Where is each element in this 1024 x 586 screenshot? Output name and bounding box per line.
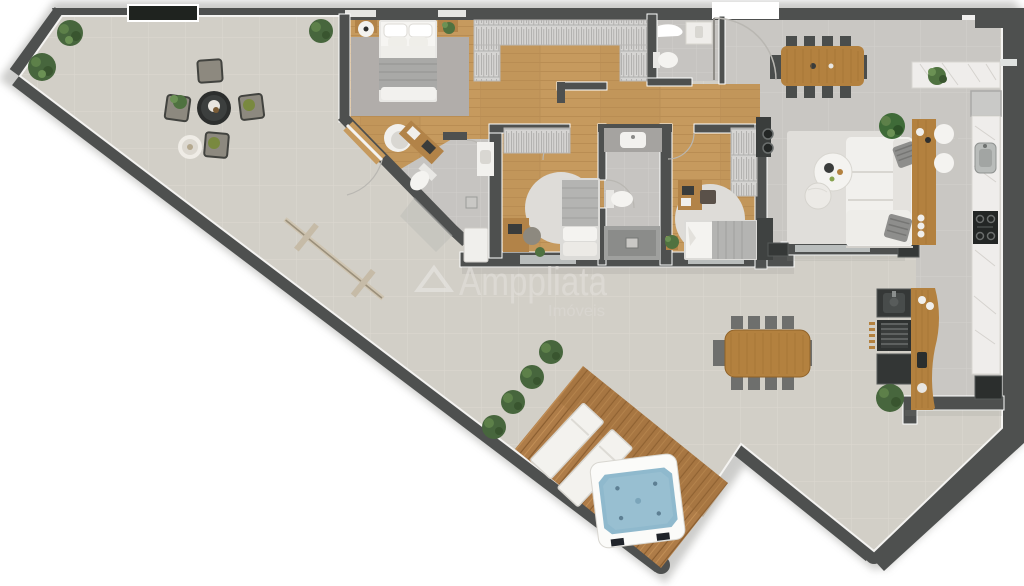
svg-text:Imóveis: Imóveis [548,303,605,320]
svg-text:Amppliata: Amppliata [459,260,608,304]
